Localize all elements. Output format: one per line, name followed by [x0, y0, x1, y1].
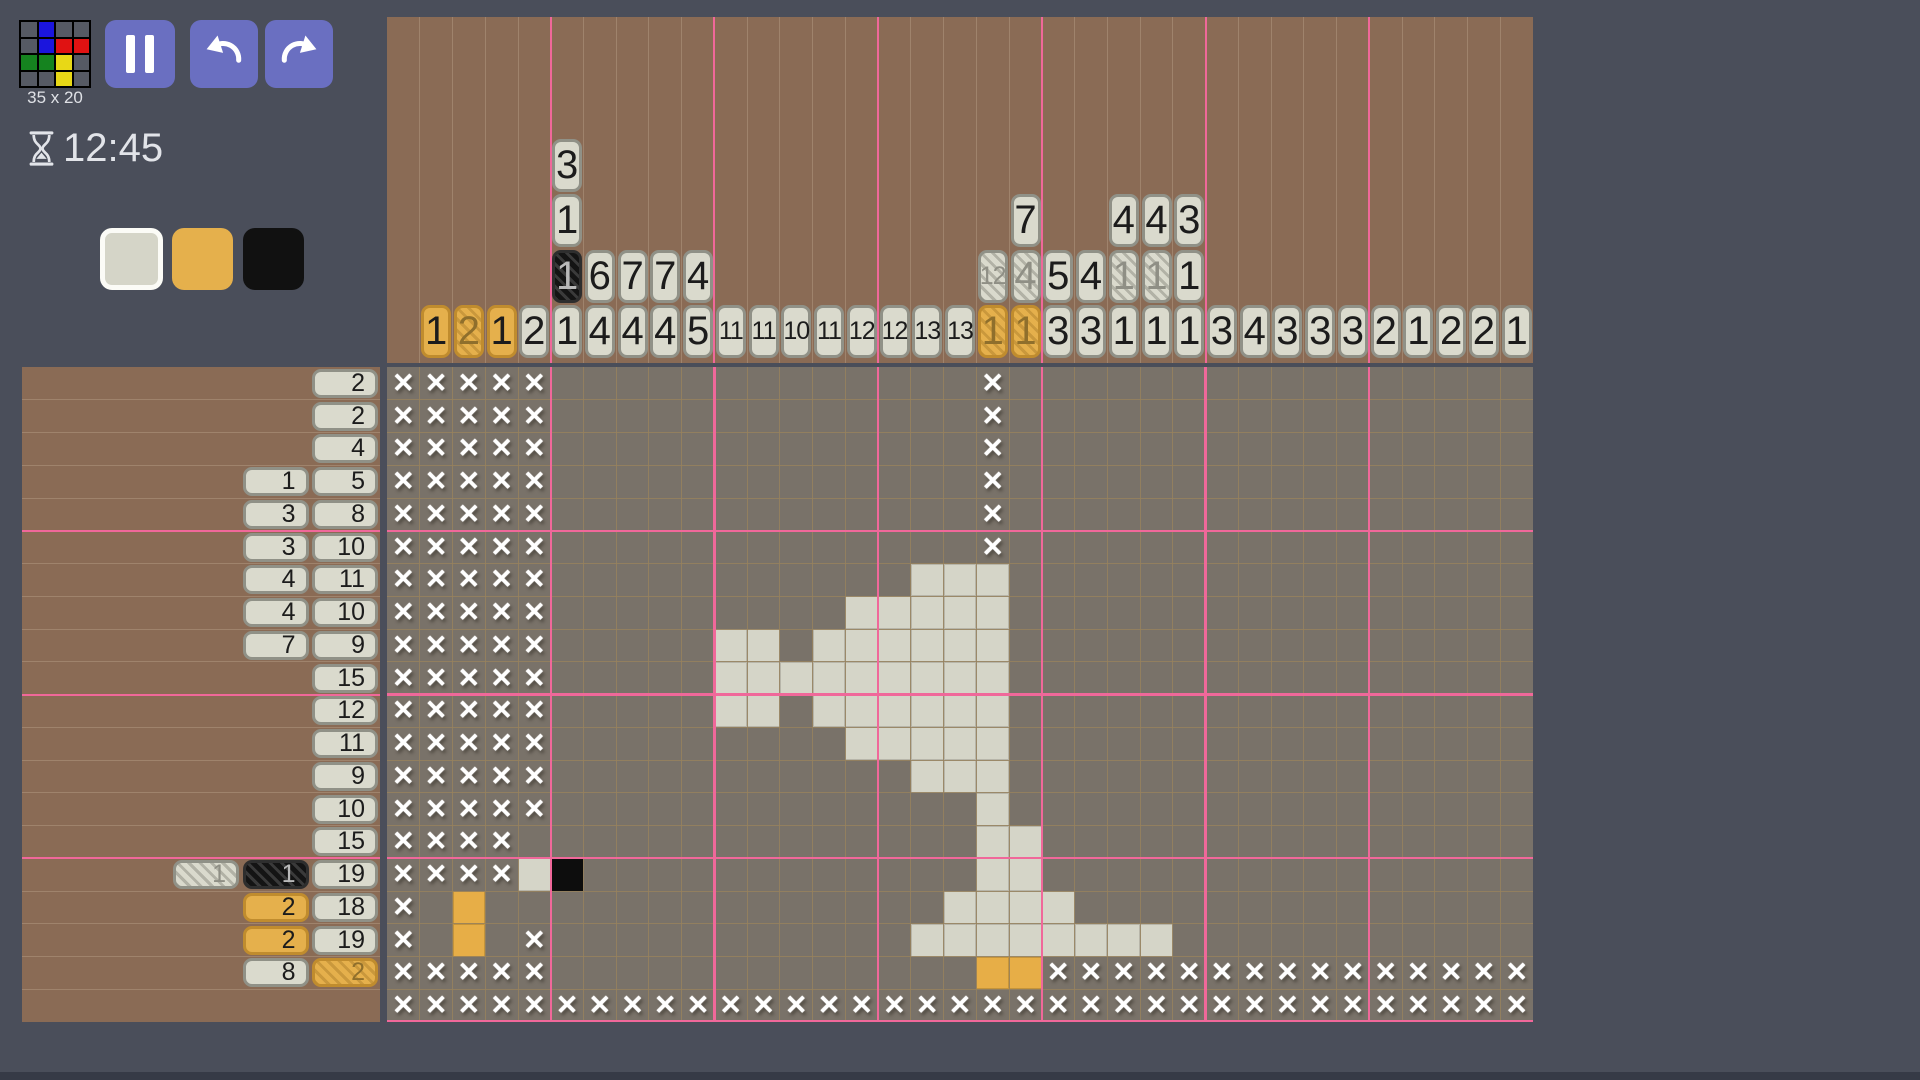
grid-cell-crossed[interactable]: ✕ [453, 957, 486, 990]
grid-cell-filled[interactable] [911, 727, 944, 760]
grid-cell-crossed[interactable]: ✕ [453, 793, 486, 826]
grid-cell-crossed[interactable]: ✕ [420, 400, 453, 433]
grid-cell-crossed[interactable]: ✕ [485, 858, 518, 891]
grid-cell-crossed[interactable]: ✕ [387, 433, 420, 466]
grid-cell-filled[interactable] [747, 629, 780, 662]
col-clue-chip[interactable]: 4 [650, 305, 680, 358]
grid-cell-crossed[interactable]: ✕ [387, 662, 420, 695]
grid-cell-crossed[interactable]: ✕ [1009, 989, 1042, 1022]
grid-cell-crossed[interactable]: ✕ [420, 695, 453, 728]
grid-cell-filled[interactable] [1009, 891, 1042, 924]
grid-cell-crossed[interactable]: ✕ [1206, 957, 1239, 990]
col-clue-chip[interactable]: 2 [454, 305, 484, 358]
grid-cell-filled[interactable] [714, 662, 747, 695]
grid-cell-crossed[interactable]: ✕ [387, 465, 420, 498]
grid-cell-crossed[interactable]: ✕ [714, 989, 747, 1022]
grid-cell-crossed[interactable]: ✕ [453, 989, 486, 1022]
grid-cell-filled[interactable] [518, 858, 551, 891]
row-clue-chip[interactable]: 1 [243, 860, 309, 889]
grid-cell-filled[interactable] [1042, 924, 1075, 957]
grid-cell-crossed[interactable]: ✕ [485, 596, 518, 629]
grid-cell-filled[interactable] [747, 662, 780, 695]
grid-cell-crossed[interactable]: ✕ [387, 891, 420, 924]
grid-cell-crossed[interactable]: ✕ [453, 695, 486, 728]
grid-cell-crossed[interactable]: ✕ [518, 531, 551, 564]
grid-cell-crossed[interactable]: ✕ [453, 564, 486, 597]
col-clue-chip[interactable]: 1 [1011, 305, 1041, 358]
x-mark-icon: ✕ [523, 632, 546, 659]
grid-cell-filled[interactable] [453, 924, 486, 957]
row-clue-chip[interactable]: 10 [312, 533, 378, 562]
col-clue-chip[interactable]: 1 [1109, 305, 1139, 358]
row-clue-chip[interactable]: 19 [312, 926, 378, 955]
grid-cell-crossed[interactable]: ✕ [518, 760, 551, 793]
grid-cell-crossed[interactable]: ✕ [420, 433, 453, 466]
grid-cell-filled[interactable] [747, 695, 780, 728]
grid-cell-crossed[interactable]: ✕ [1435, 989, 1468, 1022]
grid-cell-crossed[interactable]: ✕ [1238, 989, 1271, 1022]
grid-cell-crossed[interactable]: ✕ [976, 465, 1009, 498]
grid-cell-crossed[interactable]: ✕ [420, 989, 453, 1022]
grid-cell-filled[interactable] [976, 695, 1009, 728]
grid-cell-filled[interactable] [878, 662, 911, 695]
grid-cell-filled[interactable] [911, 596, 944, 629]
grid-cell-filled[interactable] [944, 629, 977, 662]
puzzle-grid[interactable]: ✕✕✕✕✕✕✕✕✕✕✕✕✕✕✕✕✕✕✕✕✕✕✕✕✕✕✕✕✕✕✕✕✕✕✕✕✕✕✕✕… [387, 367, 1533, 1022]
grid-cell-crossed[interactable]: ✕ [420, 957, 453, 990]
grid-cell-filled[interactable] [944, 695, 977, 728]
grid-cell-crossed[interactable]: ✕ [1042, 989, 1075, 1022]
grid-cell-filled[interactable] [976, 957, 1009, 990]
col-clue-chip[interactable]: 2 [1436, 305, 1466, 358]
grid-cell-filled[interactable] [976, 629, 1009, 662]
grid-cell-crossed[interactable]: ✕ [420, 826, 453, 859]
grid-cell-filled[interactable] [1107, 924, 1140, 957]
grid-cell-filled[interactable] [1009, 858, 1042, 891]
grid-cell-crossed[interactable]: ✕ [420, 564, 453, 597]
grid-cell-crossed[interactable]: ✕ [420, 465, 453, 498]
grid-cell-filled[interactable] [813, 662, 846, 695]
grid-cell-filled[interactable] [944, 596, 977, 629]
grid-cell-filled[interactable] [845, 727, 878, 760]
col-clue-chip[interactable]: 4 [1240, 305, 1270, 358]
grid-cell-crossed[interactable]: ✕ [976, 367, 1009, 400]
row-clue-chip[interactable]: 4 [243, 565, 309, 594]
grid-cell-filled[interactable] [845, 662, 878, 695]
col-clue-chip[interactable]: 1 [1142, 305, 1172, 358]
grid-cell-crossed[interactable]: ✕ [518, 924, 551, 957]
grid-cell-crossed[interactable]: ✕ [453, 465, 486, 498]
grid-cell-crossed[interactable]: ✕ [1206, 989, 1239, 1022]
grid-cell-crossed[interactable]: ✕ [485, 662, 518, 695]
row-clue-chip[interactable]: 10 [312, 795, 378, 824]
col-clue-chip[interactable]: 5 [1043, 250, 1073, 303]
row-clue-chip[interactable]: 2 [312, 369, 378, 398]
col-clue-chip[interactable]: 4 [618, 305, 648, 358]
grid-cell-crossed[interactable]: ✕ [420, 629, 453, 662]
grid-cell-crossed[interactable]: ✕ [1107, 989, 1140, 1022]
grid-cell-crossed[interactable]: ✕ [485, 793, 518, 826]
grid-cell-filled[interactable] [944, 662, 977, 695]
grid-cell-crossed[interactable]: ✕ [1173, 957, 1206, 990]
grid-cell-crossed[interactable]: ✕ [780, 989, 813, 1022]
grid-cell-crossed[interactable]: ✕ [518, 989, 551, 1022]
grid-cell-crossed[interactable]: ✕ [976, 400, 1009, 433]
grid-cell-crossed[interactable]: ✕ [616, 989, 649, 1022]
grid-cell-crossed[interactable]: ✕ [518, 793, 551, 826]
grid-cell-crossed[interactable]: ✕ [518, 465, 551, 498]
col-clue-chip[interactable]: 2 [1371, 305, 1401, 358]
grid-cell-crossed[interactable]: ✕ [453, 727, 486, 760]
grid-cell-crossed[interactable]: ✕ [1271, 989, 1304, 1022]
grid-cell-crossed[interactable]: ✕ [649, 989, 682, 1022]
grid-cell-filled[interactable] [813, 695, 846, 728]
grid-cell-crossed[interactable]: ✕ [813, 989, 846, 1022]
grid-cell-crossed[interactable]: ✕ [420, 858, 453, 891]
grid-cell-crossed[interactable]: ✕ [1500, 957, 1533, 990]
col-clue-chip[interactable]: 1 [552, 194, 582, 247]
grid-cell-crossed[interactable]: ✕ [387, 564, 420, 597]
grid-cell-crossed[interactable]: ✕ [387, 760, 420, 793]
grid-cell-crossed[interactable]: ✕ [453, 629, 486, 662]
row-clue-chip[interactable]: 1 [173, 860, 239, 889]
col-clue-chip[interactable]: 2 [519, 305, 549, 358]
grid-cell-crossed[interactable]: ✕ [1238, 957, 1271, 990]
col-clue-chip[interactable]: 12 [880, 305, 910, 358]
row-clue-chip[interactable]: 1 [243, 467, 309, 496]
grid-cell-crossed[interactable]: ✕ [387, 596, 420, 629]
col-clue-chip[interactable]: 11 [749, 305, 779, 358]
grid-cell-crossed[interactable]: ✕ [1140, 989, 1173, 1022]
panel-separator [22, 825, 380, 826]
row-clue-chip[interactable]: 7 [243, 631, 309, 660]
grid-cell-crossed[interactable]: ✕ [485, 531, 518, 564]
grid-cell-crossed[interactable]: ✕ [485, 564, 518, 597]
grid-cell-crossed[interactable]: ✕ [387, 793, 420, 826]
row-clue-chip[interactable]: 11 [312, 565, 378, 594]
row-clue-chip[interactable]: 15 [312, 664, 378, 693]
grid-cell-filled[interactable] [976, 858, 1009, 891]
row-clue-chip[interactable]: 8 [312, 500, 378, 529]
grid-cell-crossed[interactable]: ✕ [976, 531, 1009, 564]
grid-cell-filled[interactable] [1075, 924, 1108, 957]
grid-cell-crossed[interactable]: ✕ [453, 433, 486, 466]
grid-cell-crossed[interactable]: ✕ [1173, 989, 1206, 1022]
grid-cell-crossed[interactable]: ✕ [944, 989, 977, 1022]
grid-cell-crossed[interactable]: ✕ [976, 989, 1009, 1022]
grid-cell-filled[interactable] [714, 629, 747, 662]
grid-cell-filled[interactable] [1140, 924, 1173, 957]
grid-cell-crossed[interactable]: ✕ [387, 629, 420, 662]
col-clue-chip[interactable]: 7 [1011, 194, 1041, 247]
row-clue-chip[interactable]: 8 [243, 958, 309, 987]
grid-cell-filled[interactable] [911, 629, 944, 662]
col-clue-chip[interactable]: 4 [683, 250, 713, 303]
palette-swatch-orange[interactable] [172, 228, 233, 290]
col-clue-chip[interactable]: 4 [1011, 250, 1041, 303]
col-clue-chip[interactable]: 13 [945, 305, 975, 358]
row-clue-chip[interactable]: 15 [312, 827, 378, 856]
row-clue-chip[interactable]: 11 [312, 729, 378, 758]
col-clue-chip[interactable]: 4 [1076, 250, 1106, 303]
col-clue-chip[interactable]: 3 [1338, 305, 1368, 358]
grid-cell-crossed[interactable]: ✕ [485, 826, 518, 859]
palette-swatch-black[interactable] [243, 228, 304, 290]
grid-cell-crossed[interactable]: ✕ [878, 989, 911, 1022]
grid-cell-crossed[interactable]: ✕ [453, 826, 486, 859]
grid-cell-filled[interactable] [845, 629, 878, 662]
grid-cell-crossed[interactable]: ✕ [1337, 957, 1370, 990]
grid-cell-crossed[interactable]: ✕ [387, 400, 420, 433]
grid-cell-filled[interactable] [1009, 957, 1042, 990]
grid-cell-filled[interactable] [944, 760, 977, 793]
grid-cell-crossed[interactable]: ✕ [387, 367, 420, 400]
grid-cell-crossed[interactable]: ✕ [1140, 957, 1173, 990]
grid-cell-crossed[interactable]: ✕ [1271, 957, 1304, 990]
grid-cell-crossed[interactable]: ✕ [453, 760, 486, 793]
col-clue-chip[interactable]: 1 [1142, 250, 1172, 303]
grid-cell-crossed[interactable]: ✕ [420, 367, 453, 400]
col-clue-chip[interactable]: 1 [421, 305, 451, 358]
row-clue-chip[interactable]: 10 [312, 598, 378, 627]
grid-cell-crossed[interactable]: ✕ [518, 564, 551, 597]
grid-cell-filled[interactable] [1009, 826, 1042, 859]
grid-cell-crossed[interactable]: ✕ [518, 433, 551, 466]
grid-cell-crossed[interactable]: ✕ [1107, 957, 1140, 990]
grid-cell-crossed[interactable]: ✕ [420, 596, 453, 629]
grid-cell-crossed[interactable]: ✕ [453, 596, 486, 629]
col-clue-chip[interactable]: 7 [618, 250, 648, 303]
row-clue-chip[interactable]: 19 [312, 860, 378, 889]
grid-cell-filled[interactable] [878, 695, 911, 728]
grid-cell-filled[interactable] [845, 596, 878, 629]
grid-cell-crossed[interactable]: ✕ [387, 498, 420, 531]
grid-cell-filled[interactable] [845, 695, 878, 728]
grid-cell-crossed[interactable]: ✕ [1468, 989, 1501, 1022]
col-clue-chip[interactable]: 1 [978, 305, 1008, 358]
col-clue-chip[interactable]: 11 [814, 305, 844, 358]
grid-cell-filled[interactable] [911, 662, 944, 695]
grid-cell-filled[interactable] [976, 760, 1009, 793]
grid-cell-crossed[interactable]: ✕ [518, 367, 551, 400]
grid-cell-filled[interactable] [976, 826, 1009, 859]
grid-cell-crossed[interactable]: ✕ [485, 760, 518, 793]
col-clue-chip[interactable]: 1 [1174, 250, 1204, 303]
grid-cell-crossed[interactable]: ✕ [420, 498, 453, 531]
palette-swatch-white[interactable] [100, 228, 163, 290]
grid-cell-filled[interactable] [976, 662, 1009, 695]
grid-cell-filled[interactable] [780, 662, 813, 695]
grid-cell-crossed[interactable]: ✕ [1075, 957, 1108, 990]
grid-cell-crossed[interactable]: ✕ [453, 367, 486, 400]
grid-cell-filled[interactable] [944, 891, 977, 924]
grid-cell-filled[interactable] [1009, 924, 1042, 957]
grid-cell-crossed[interactable]: ✕ [976, 498, 1009, 531]
grid-cell-crossed[interactable]: ✕ [387, 531, 420, 564]
grid-cell-crossed[interactable]: ✕ [1042, 957, 1075, 990]
grid-cell-crossed[interactable]: ✕ [518, 957, 551, 990]
grid-cell-crossed[interactable]: ✕ [682, 989, 715, 1022]
col-clue-chip[interactable]: 1 [1174, 305, 1204, 358]
panel-separator [1467, 17, 1468, 363]
grid-cell-filled[interactable] [911, 760, 944, 793]
grid-cell-crossed[interactable]: ✕ [453, 498, 486, 531]
x-mark-icon: ✕ [1473, 959, 1496, 986]
grid-cell-filled[interactable] [551, 858, 584, 891]
col-clue-chip[interactable]: 12 [978, 250, 1008, 303]
grid-cell-crossed[interactable]: ✕ [420, 531, 453, 564]
grid-cell-crossed[interactable]: ✕ [518, 662, 551, 695]
grid-cell-crossed[interactable]: ✕ [387, 924, 420, 957]
panel-separator [1336, 17, 1337, 363]
col-clue-chip[interactable]: 13 [912, 305, 942, 358]
grid-cell-crossed[interactable]: ✕ [485, 498, 518, 531]
grid-cell-crossed[interactable]: ✕ [453, 531, 486, 564]
row-clue-chip[interactable]: 2 [312, 402, 378, 431]
grid-cell-crossed[interactable]: ✕ [1435, 957, 1468, 990]
grid-cell-crossed[interactable]: ✕ [420, 760, 453, 793]
grid-cell-filled[interactable] [976, 727, 1009, 760]
grid-cell-crossed[interactable]: ✕ [387, 989, 420, 1022]
grid-cell-crossed[interactable]: ✕ [485, 465, 518, 498]
grid-cell-crossed[interactable]: ✕ [485, 629, 518, 662]
pause-button[interactable] [105, 20, 175, 88]
grid-cell-crossed[interactable]: ✕ [485, 727, 518, 760]
col-clue-chip[interactable]: 3 [1076, 305, 1106, 358]
grid-cell-filled[interactable] [944, 924, 977, 957]
col-clue-chip[interactable]: 10 [781, 305, 811, 358]
grid-cell-filled[interactable] [976, 564, 1009, 597]
grid-cell-crossed[interactable]: ✕ [845, 989, 878, 1022]
grid-cell-filled[interactable] [911, 924, 944, 957]
grid-cell-crossed[interactable]: ✕ [485, 367, 518, 400]
grid-cell-crossed[interactable]: ✕ [453, 858, 486, 891]
col-clue-chip[interactable]: 1 [1502, 305, 1532, 358]
grid-cell-crossed[interactable]: ✕ [387, 858, 420, 891]
grid-cell-crossed[interactable]: ✕ [1402, 957, 1435, 990]
grid-cell-crossed[interactable]: ✕ [1369, 957, 1402, 990]
grid-cell-filled[interactable] [976, 891, 1009, 924]
row-clue-chip[interactable]: 3 [243, 500, 309, 529]
grid-cell-crossed[interactable]: ✕ [518, 498, 551, 531]
col-clue-chip[interactable]: 12 [847, 305, 877, 358]
grid-cell-filled[interactable] [813, 629, 846, 662]
grid-cell-filled[interactable] [878, 727, 911, 760]
col-clue-chip[interactable]: 3 [552, 139, 582, 192]
col-clue-chip[interactable]: 3 [1207, 305, 1237, 358]
grid-cell-crossed[interactable]: ✕ [1369, 989, 1402, 1022]
grid-cell-filled[interactable] [453, 891, 486, 924]
col-clue-chip[interactable]: 7 [650, 250, 680, 303]
row-clue-chip[interactable]: 2 [243, 926, 309, 955]
row-clue-chip[interactable]: 2 [243, 893, 309, 922]
grid-cell-crossed[interactable]: ✕ [387, 695, 420, 728]
grid-cell-filled[interactable] [878, 596, 911, 629]
col-clue-chip[interactable]: 3 [1305, 305, 1335, 358]
grid-cell-crossed[interactable]: ✕ [1304, 957, 1337, 990]
grid-cell-crossed[interactable]: ✕ [485, 989, 518, 1022]
grid-cell-filled[interactable] [1042, 891, 1075, 924]
col-clue-chip[interactable]: 5 [683, 305, 713, 358]
grid-cell-crossed[interactable]: ✕ [1075, 989, 1108, 1022]
grid-cell-crossed[interactable]: ✕ [420, 662, 453, 695]
row-clue-chip[interactable]: 12 [312, 696, 378, 725]
row-clue-chip[interactable]: 3 [243, 533, 309, 562]
grid-cell-crossed[interactable]: ✕ [485, 957, 518, 990]
col-clue-chip[interactable]: 1 [1109, 250, 1139, 303]
redo-button[interactable] [265, 20, 333, 88]
col-clue-chip[interactable]: 3 [1043, 305, 1073, 358]
row-clue-chip[interactable]: 2 [312, 958, 378, 987]
grid-cell-crossed[interactable]: ✕ [387, 826, 420, 859]
grid-cell-filled[interactable] [976, 924, 1009, 957]
grid-cell-filled[interactable] [944, 727, 977, 760]
grid-cell-crossed[interactable]: ✕ [911, 989, 944, 1022]
row-clue-chip[interactable]: 9 [312, 762, 378, 791]
grid-cell-crossed[interactable]: ✕ [453, 400, 486, 433]
grid-cell-crossed[interactable]: ✕ [1402, 989, 1435, 1022]
grid-cell-crossed[interactable]: ✕ [485, 433, 518, 466]
grid-cell-crossed[interactable]: ✕ [518, 596, 551, 629]
grid-cell-crossed[interactable]: ✕ [1500, 989, 1533, 1022]
col-clue-chip[interactable]: 1 [552, 305, 582, 358]
grid-cell-crossed[interactable]: ✕ [518, 727, 551, 760]
grid-cell-filled[interactable] [878, 629, 911, 662]
undo-button[interactable] [190, 20, 258, 88]
col-clue-chip[interactable]: 4 [585, 305, 615, 358]
grid-cell-crossed[interactable]: ✕ [387, 957, 420, 990]
col-clue-chip[interactable]: 4 [1142, 194, 1172, 247]
row-clue-chip[interactable]: 4 [243, 598, 309, 627]
grid-cell-crossed[interactable]: ✕ [518, 400, 551, 433]
col-clue-chip[interactable]: 2 [1469, 305, 1499, 358]
row-clue-chip[interactable]: 4 [312, 434, 378, 463]
grid-cell-crossed[interactable]: ✕ [976, 433, 1009, 466]
row-clue-chip[interactable]: 9 [312, 631, 378, 660]
grid-cell-crossed[interactable]: ✕ [518, 629, 551, 662]
grid-cell-crossed[interactable]: ✕ [485, 695, 518, 728]
grid-cell-crossed[interactable]: ✕ [387, 727, 420, 760]
row-clue-chip[interactable]: 18 [312, 893, 378, 922]
col-clue-chip[interactable]: 4 [1109, 194, 1139, 247]
grid-cell-crossed[interactable]: ✕ [420, 727, 453, 760]
col-clue-chip[interactable]: 1 [552, 250, 582, 303]
grid-cell-crossed[interactable]: ✕ [1468, 957, 1501, 990]
grid-cell-crossed[interactable]: ✕ [1337, 989, 1370, 1022]
grid-cell-crossed[interactable]: ✕ [747, 989, 780, 1022]
col-clue-chip[interactable]: 1 [1403, 305, 1433, 358]
col-clue-chip[interactable]: 1 [487, 305, 517, 358]
col-clue-chip[interactable]: 3 [1174, 194, 1204, 247]
grid-cell-crossed[interactable]: ✕ [485, 400, 518, 433]
col-clue-chip[interactable]: 3 [1272, 305, 1302, 358]
grid-cell-crossed[interactable]: ✕ [420, 793, 453, 826]
grid-cell-crossed[interactable]: ✕ [453, 662, 486, 695]
grid-cell-crossed[interactable]: ✕ [1304, 989, 1337, 1022]
grid-cell-crossed[interactable]: ✕ [551, 989, 584, 1022]
col-clue-chip[interactable]: 11 [716, 305, 746, 358]
grid-cell-filled[interactable] [976, 596, 1009, 629]
grid-cell-crossed[interactable]: ✕ [518, 695, 551, 728]
grid-cell-crossed[interactable]: ✕ [584, 989, 617, 1022]
grid-cell-filled[interactable] [714, 695, 747, 728]
grid-cell-filled[interactable] [976, 793, 1009, 826]
grid-cell-filled[interactable] [911, 695, 944, 728]
grid-cell-filled[interactable] [911, 564, 944, 597]
grid-cell-filled[interactable] [944, 564, 977, 597]
col-clue-chip[interactable]: 6 [585, 250, 615, 303]
row-clue-chip[interactable]: 5 [312, 467, 378, 496]
